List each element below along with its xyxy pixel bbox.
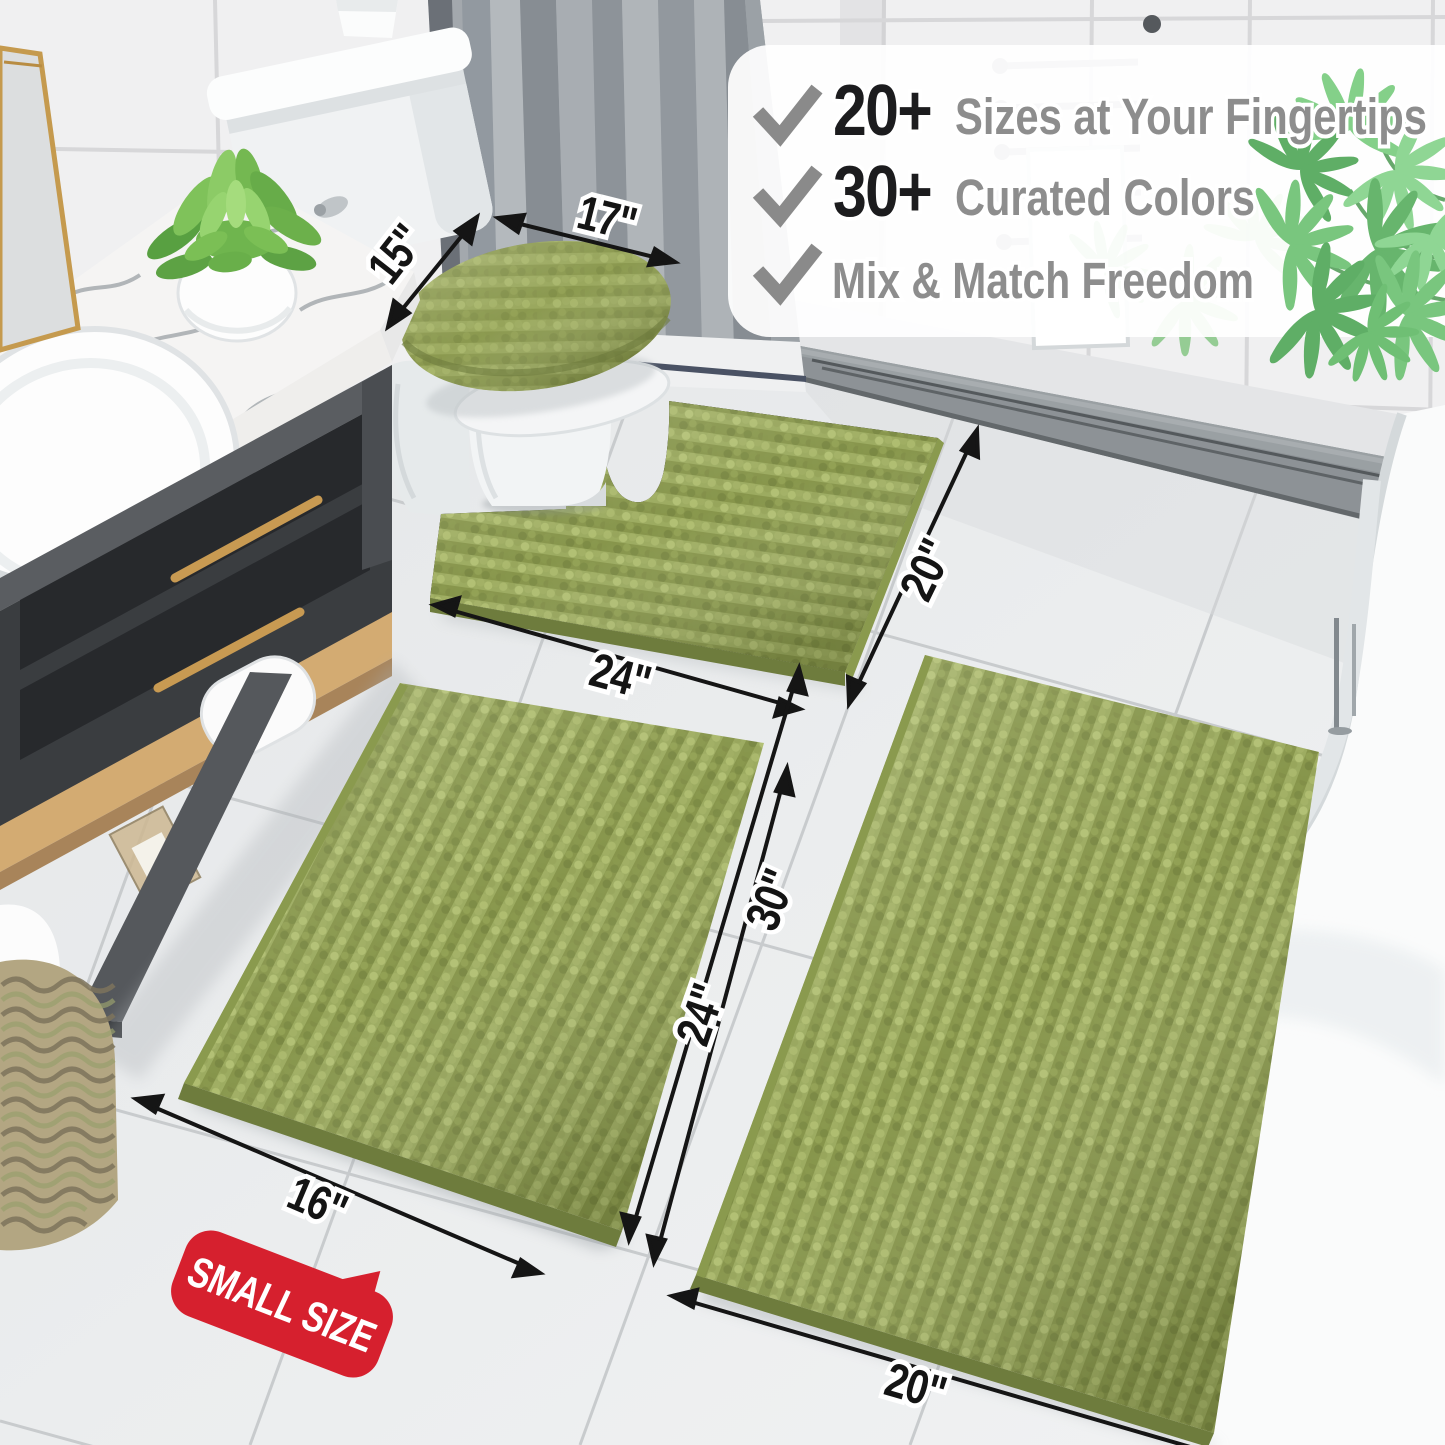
svg-text:30+: 30+ bbox=[833, 152, 931, 232]
svg-text:Sizes at Your Fingertips: Sizes at Your Fingertips bbox=[955, 88, 1427, 145]
svg-text:20+: 20+ bbox=[833, 71, 931, 151]
svg-text:Mix & Match Freedom: Mix & Match Freedom bbox=[832, 252, 1254, 309]
svg-text:Curated Colors: Curated Colors bbox=[955, 169, 1255, 226]
